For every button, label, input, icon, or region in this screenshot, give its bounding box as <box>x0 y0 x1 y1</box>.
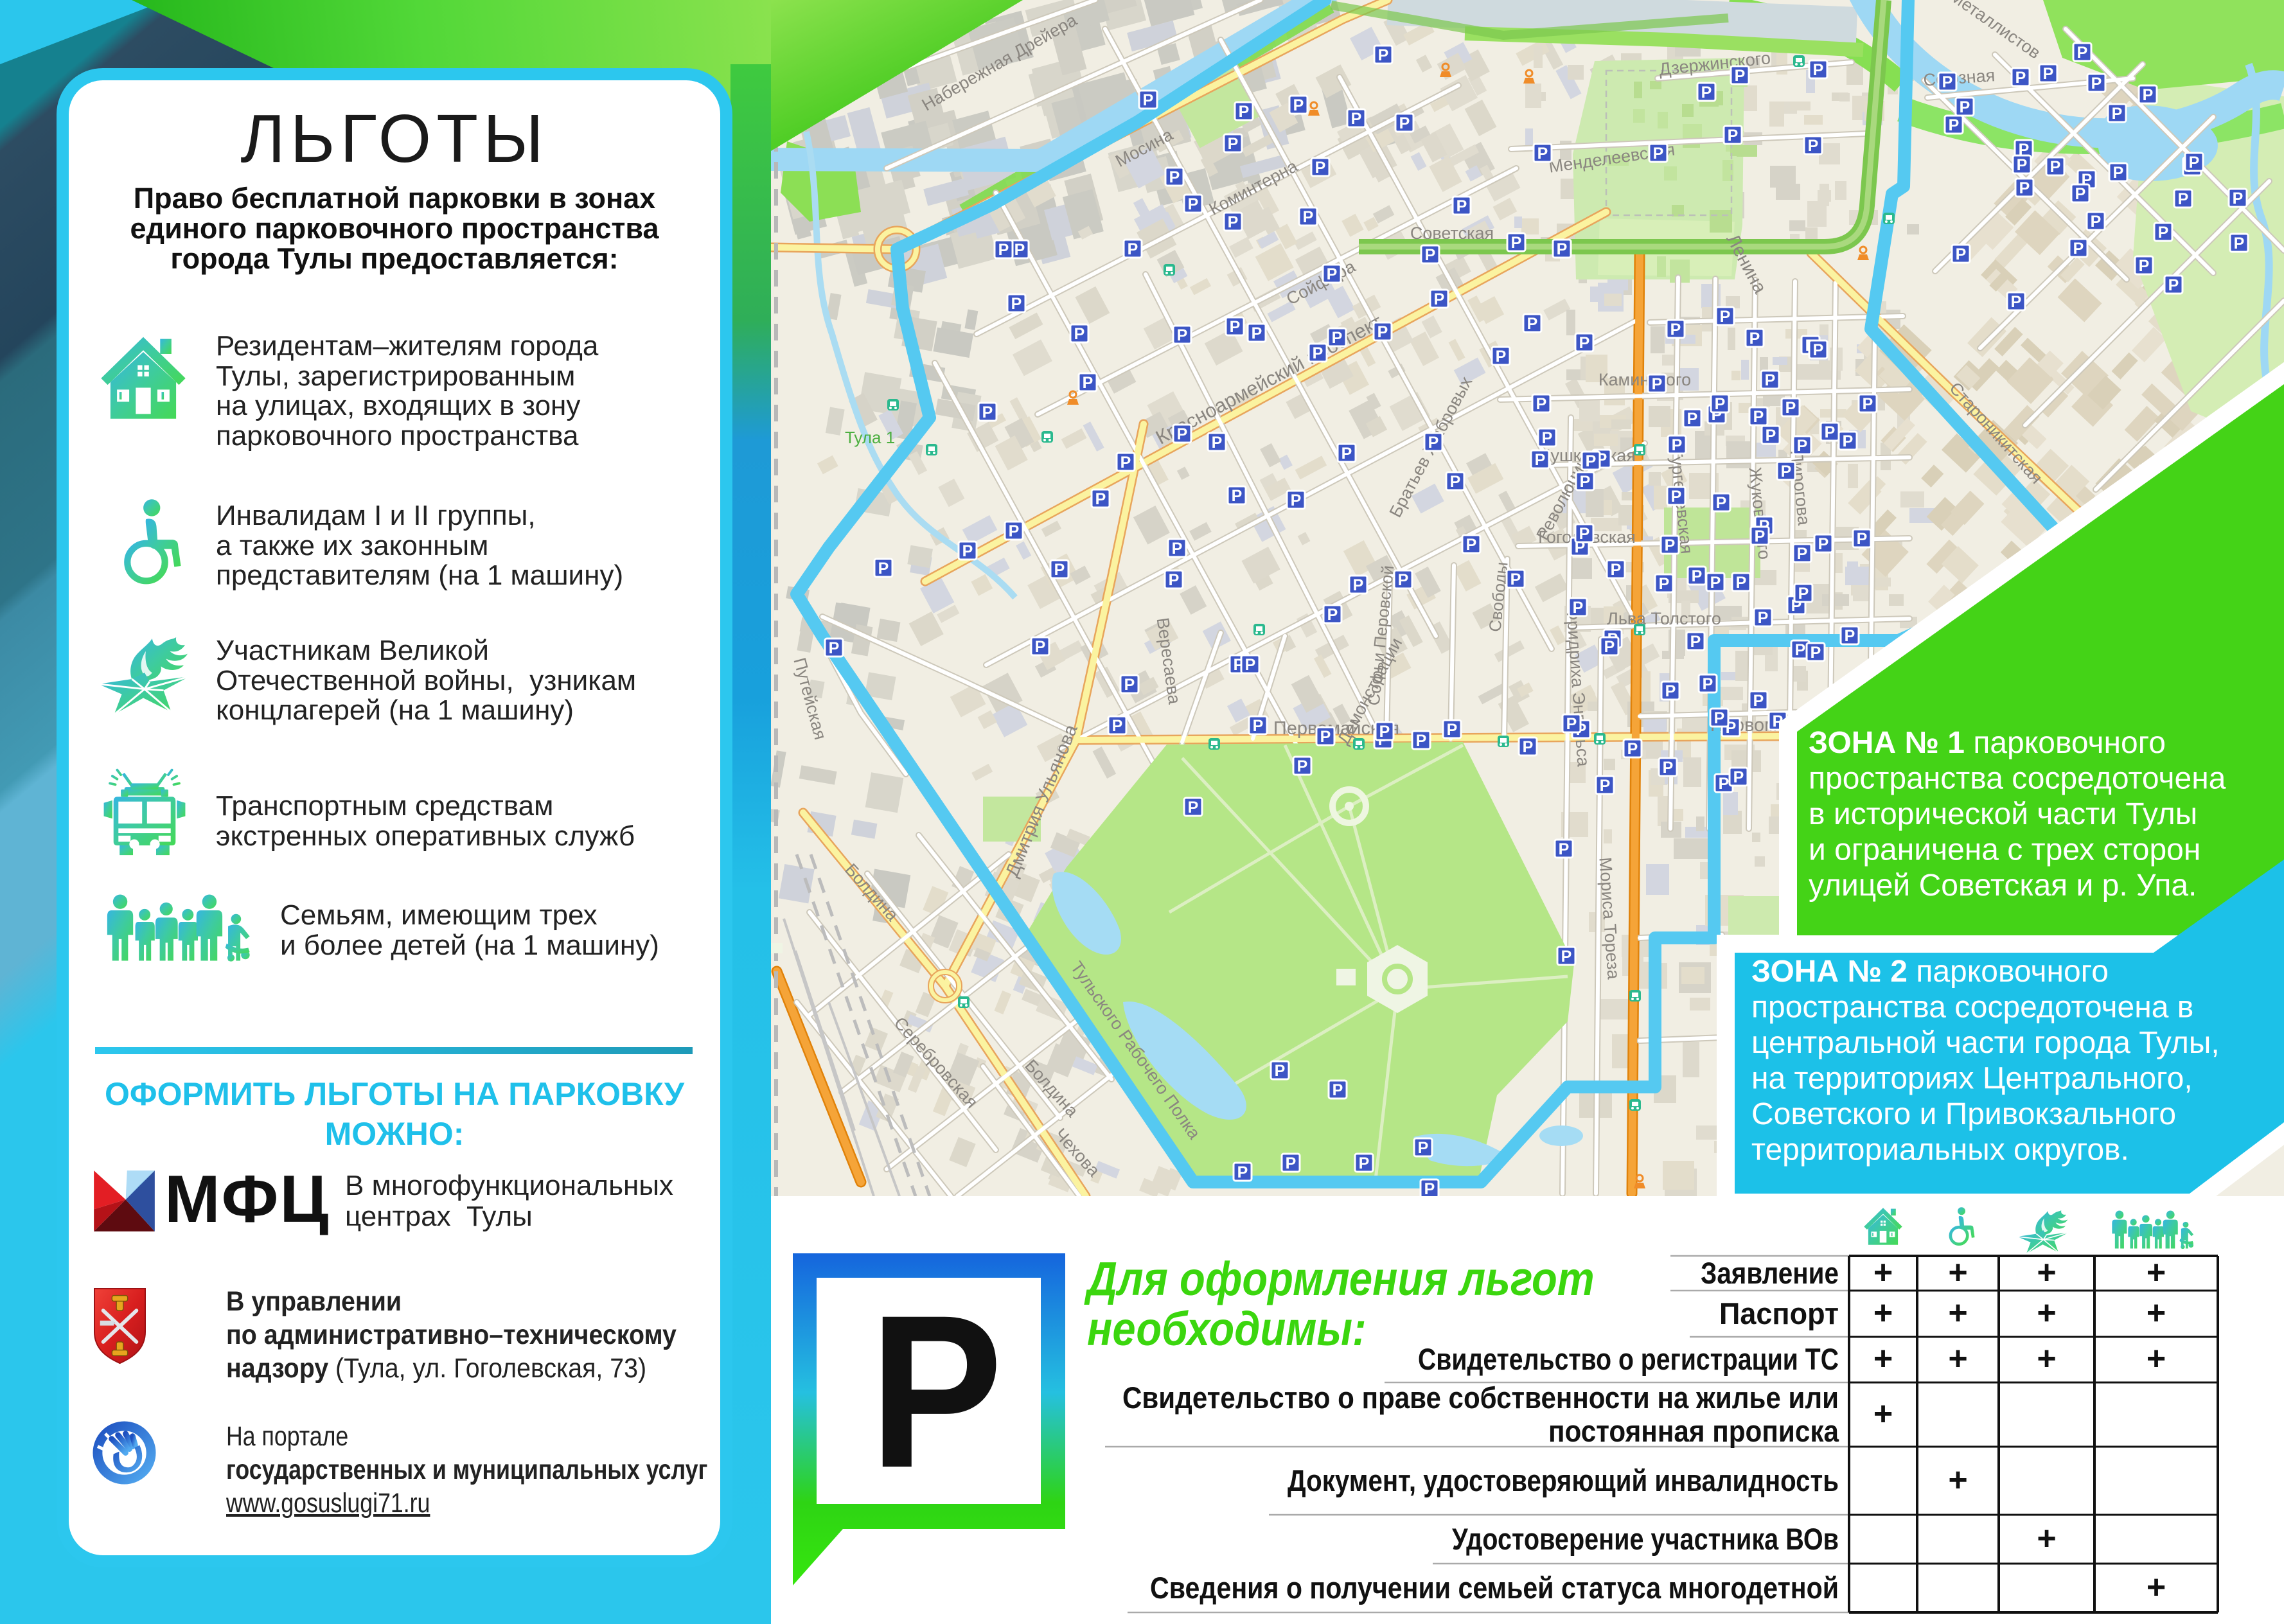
svg-text:+: + <box>2037 1254 2056 1291</box>
svg-text:+: + <box>1948 1294 1967 1332</box>
svg-text:+: + <box>1948 1254 1967 1291</box>
svg-text:+: + <box>1948 1340 1967 1377</box>
svg-text:Свидетельство о регистрации ТС: Свидетельство о регистрации ТС <box>1418 1342 1839 1376</box>
svg-text:Заявление: Заявление <box>1701 1256 1839 1290</box>
svg-text:+: + <box>2037 1340 2056 1377</box>
svg-text:+: + <box>2147 1569 2166 1606</box>
svg-text:+: + <box>1873 1340 1893 1377</box>
svg-text:Паспорт: Паспорт <box>1719 1296 1839 1330</box>
svg-text:Документ, удостоверяющий инвал: Документ, удостоверяющий инвалидность <box>1288 1463 1839 1497</box>
svg-text:Удостоверение участника ВОв: Удостоверение участника ВОв <box>1452 1522 1839 1556</box>
svg-text:+: + <box>1873 1254 1893 1291</box>
svg-text:Свидетельство о праве собствен: Свидетельство о праве собственности на ж… <box>1122 1381 1839 1415</box>
svg-text:+: + <box>2037 1520 2056 1557</box>
svg-text:+: + <box>2147 1254 2166 1291</box>
svg-text:+: + <box>2037 1294 2056 1332</box>
svg-text:+: + <box>2147 1294 2166 1332</box>
svg-text:+: + <box>1873 1294 1893 1332</box>
svg-text:+: + <box>1948 1461 1967 1499</box>
svg-text:Сведения о получении семьей ст: Сведения о получении семьей статуса мног… <box>1150 1571 1839 1605</box>
svg-text:постоянная прописка: постоянная прописка <box>1548 1414 1839 1448</box>
svg-text:+: + <box>2147 1340 2166 1377</box>
svg-text:+: + <box>1873 1395 1893 1433</box>
